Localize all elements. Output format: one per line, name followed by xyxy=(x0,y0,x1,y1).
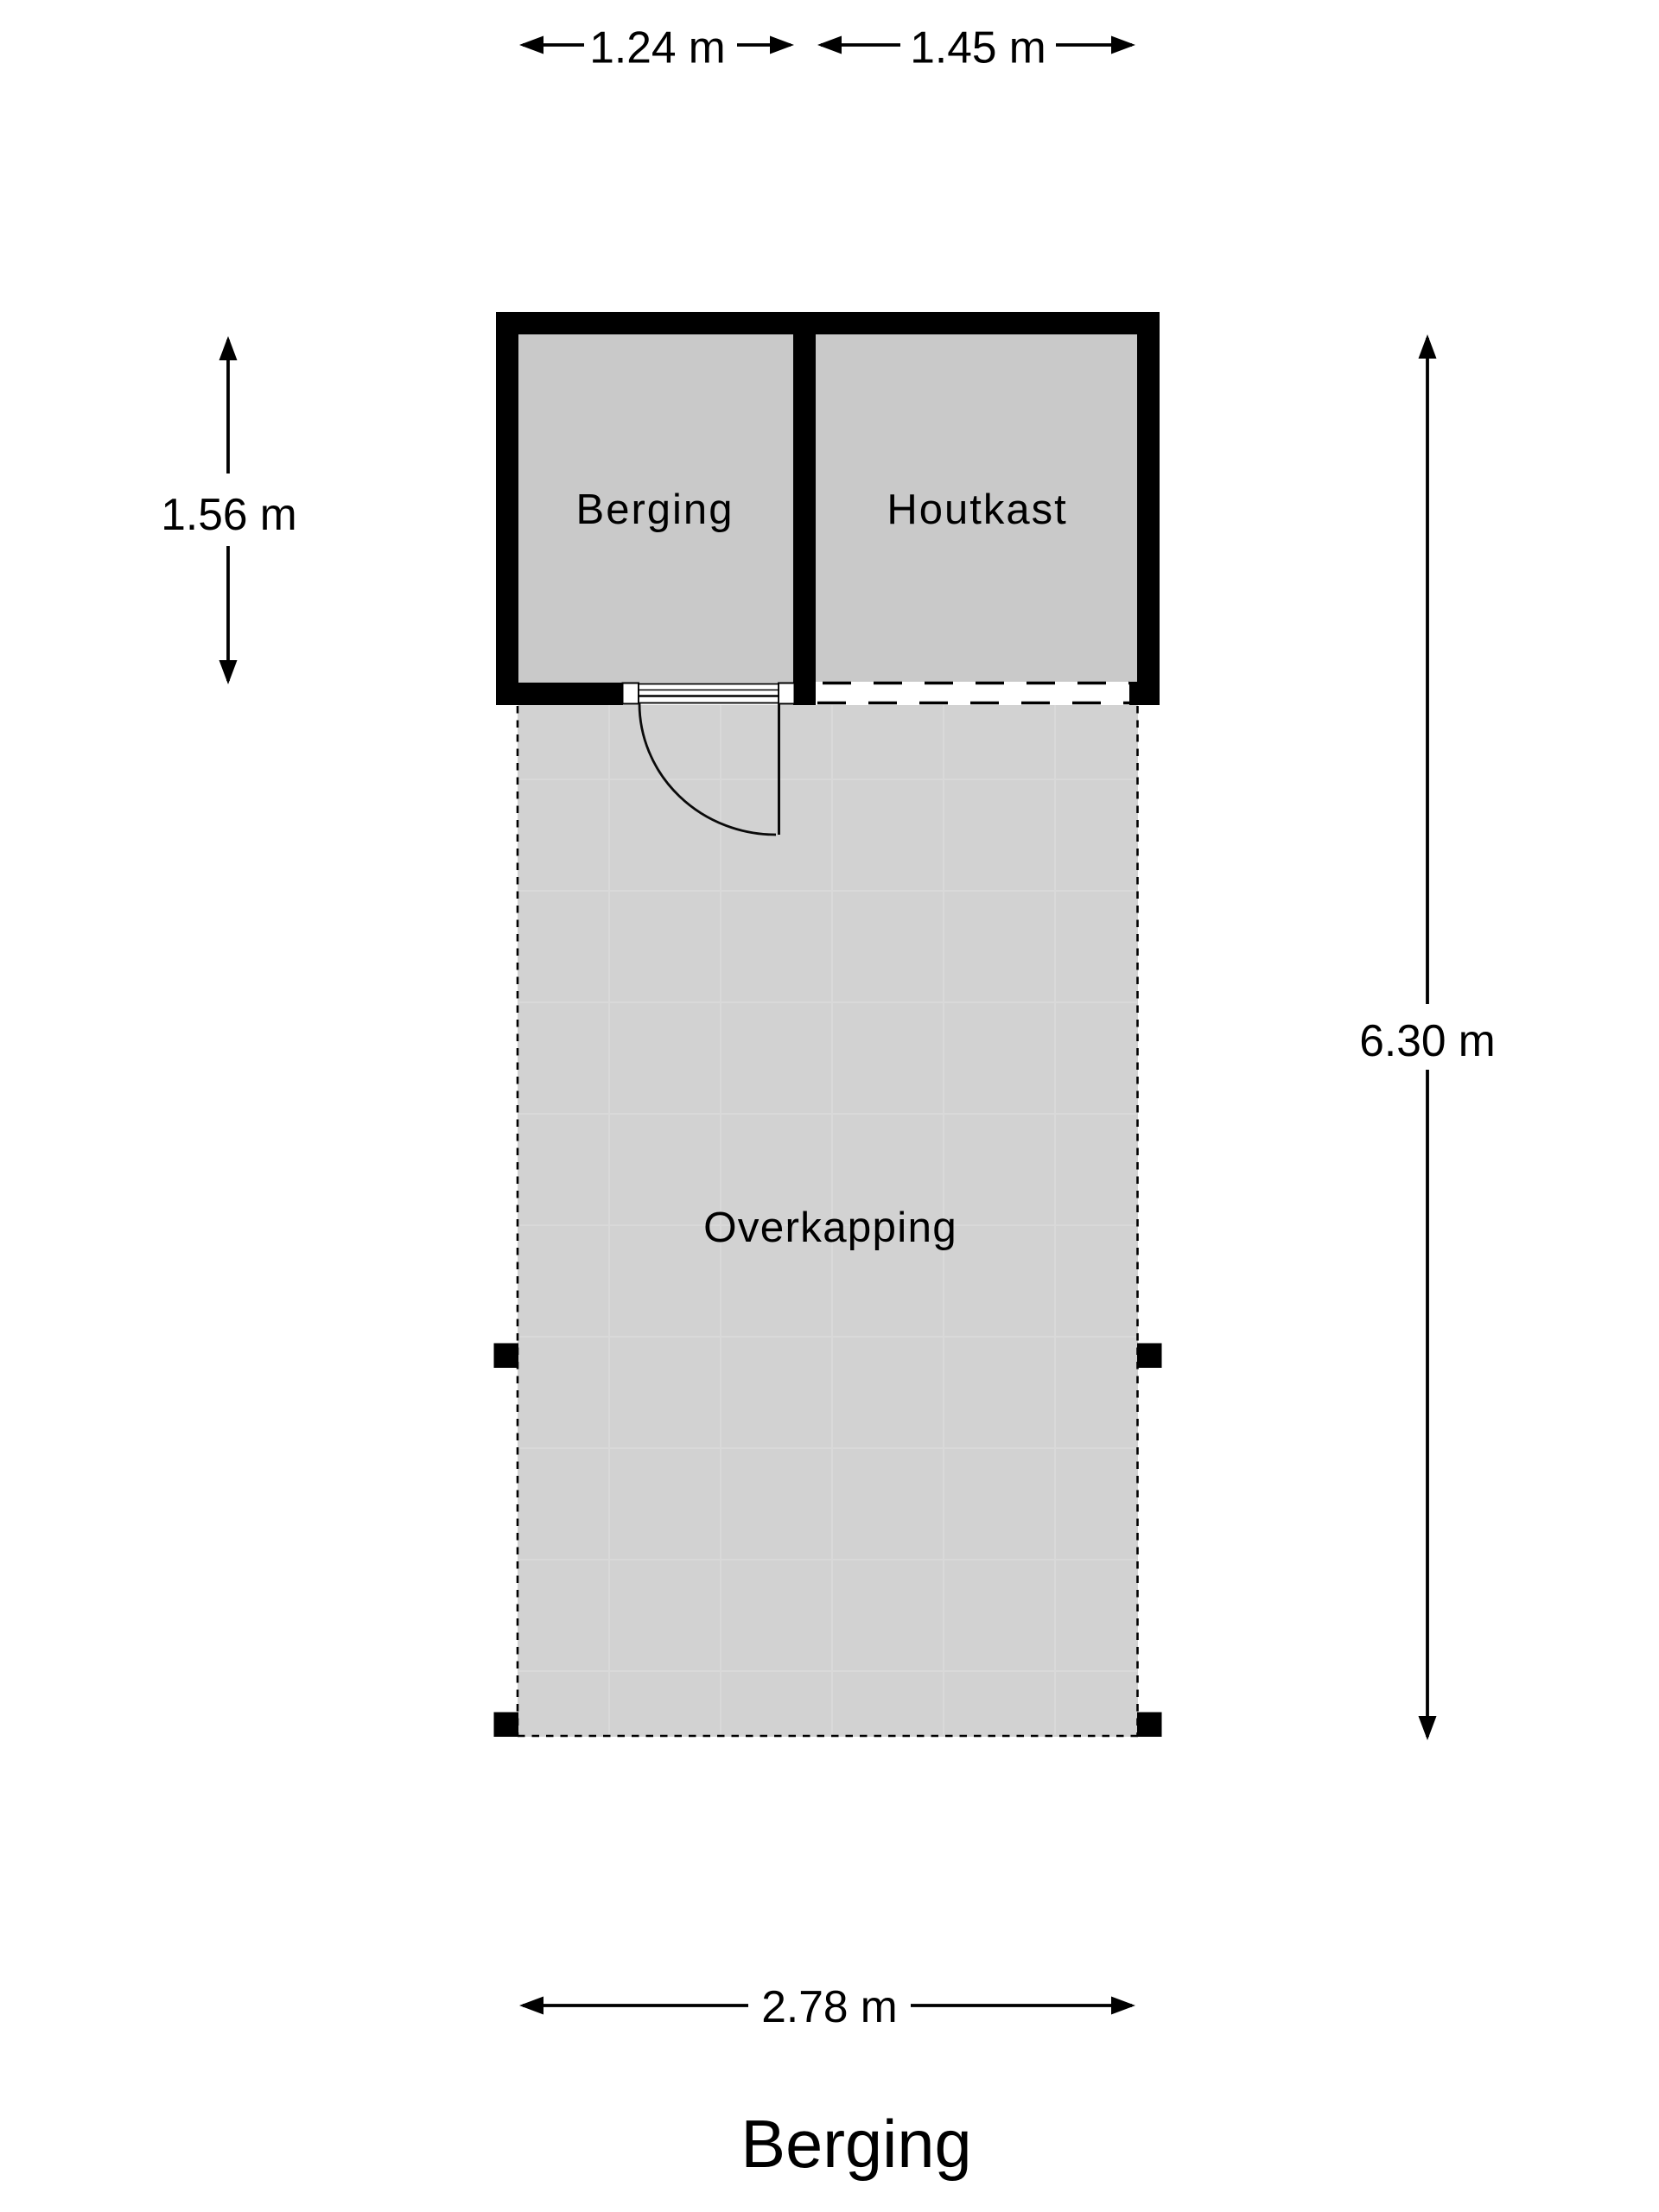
svg-text:1.56 m: 1.56 m xyxy=(161,489,296,539)
svg-text:2.78 m: 2.78 m xyxy=(761,1981,897,2031)
svg-text:1.45 m: 1.45 m xyxy=(910,22,1046,73)
svg-text:Houtkast: Houtkast xyxy=(887,486,1067,533)
svg-text:1.24 m: 1.24 m xyxy=(589,22,725,73)
svg-text:6.30 m: 6.30 m xyxy=(1359,1015,1495,1065)
svg-text:Berging: Berging xyxy=(741,2107,971,2182)
svg-text:Berging: Berging xyxy=(576,486,734,533)
svg-text:Overkapping: Overkapping xyxy=(703,1204,957,1251)
